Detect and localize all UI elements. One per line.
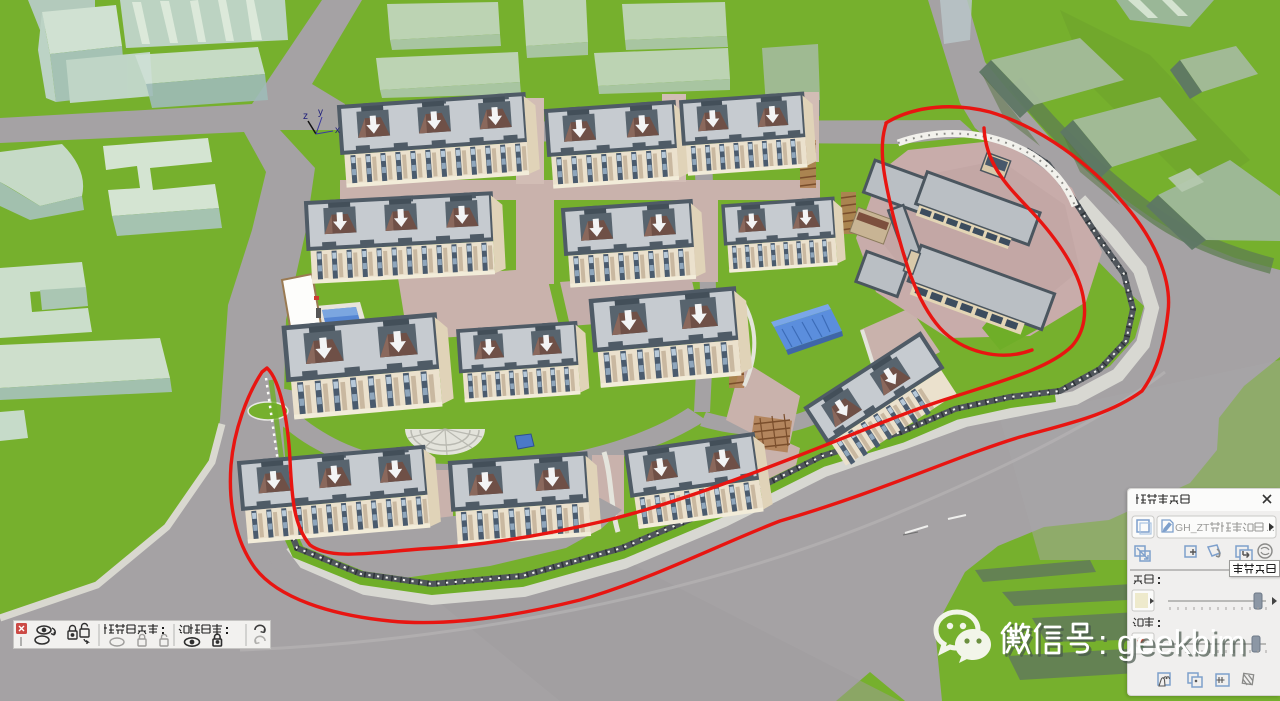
svg-text:: geekbim: : geekbim [1098,624,1245,662]
svg-text:GH_ZT: GH_ZT [1175,522,1210,534]
svg-text:z: z [303,111,308,122]
svg-text:x: x [335,125,340,136]
svg-text:y: y [318,107,323,118]
